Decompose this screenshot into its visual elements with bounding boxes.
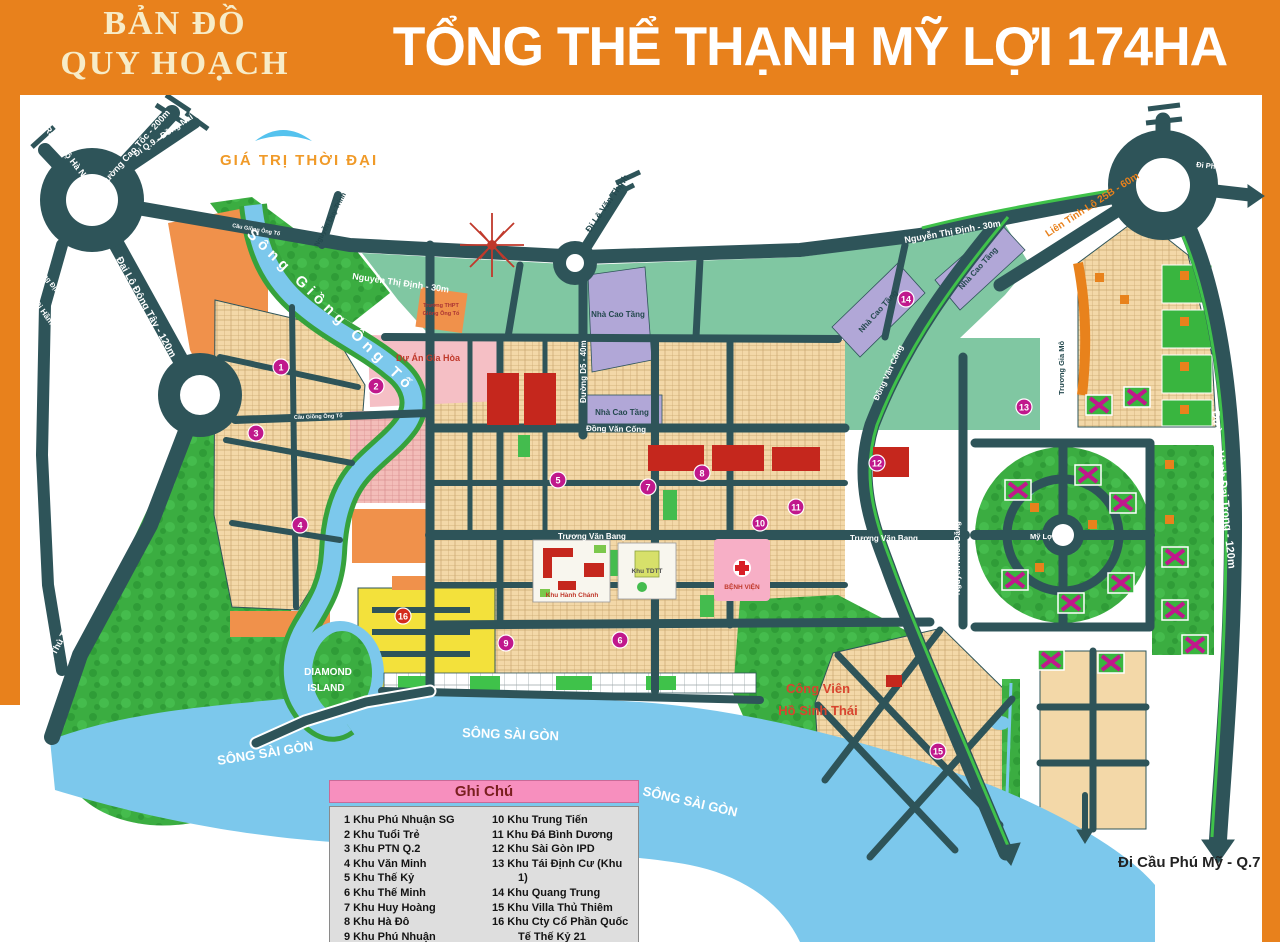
road-label-dong-van-cong-1: Đồng Văn Cống xyxy=(586,424,646,434)
road-label-dai-lo-dong-tay-1: Đại Lộ Đông Tây - 120m xyxy=(113,255,178,360)
area-marker-number: 14 xyxy=(901,295,911,305)
area-marker-number: 16 xyxy=(398,612,408,622)
area-marker-number: 2 xyxy=(373,382,378,392)
area-marker-number: 1 xyxy=(278,363,283,373)
area-marker-number: 15 xyxy=(933,747,943,757)
area-label-diamond-2: ISLAND xyxy=(307,683,344,694)
legend-item: 15 Khu Villa Thủ Thiêm xyxy=(492,901,634,916)
road-label-truong-gia-mo: Trương Gia Mô xyxy=(1057,340,1066,395)
legend-item: 3 Khu PTN Q.2 xyxy=(344,842,486,857)
area-label-nct-1: Nhà Cao Tầng xyxy=(591,310,645,319)
legend: Ghi Chú 1 Khu Phú Nhuận SG2 Khu Tuổi Trẻ… xyxy=(329,780,639,942)
area-label-congvien-1: Công Viên xyxy=(786,681,850,696)
area-label-diamond-1: DIAMOND xyxy=(304,667,352,678)
area-label-nct-2: Nhà Cao Tầng xyxy=(595,408,649,417)
legend-box: 1 Khu Phú Nhuận SG2 Khu Tuổi Trẻ3 Khu PT… xyxy=(329,806,639,942)
area-marker-number: 4 xyxy=(297,521,302,531)
program-label: BẢN ĐỒ QUY HOẠCH xyxy=(0,4,350,84)
area-marker-number: 9 xyxy=(503,639,508,649)
area-marker-number: 11 xyxy=(791,503,801,513)
legend-column-left: 1 Khu Phú Nhuận SG2 Khu Tuổi Trẻ3 Khu PT… xyxy=(344,813,486,942)
area-label-thpt-1: Trường THPT xyxy=(423,303,459,309)
area-label-khu-hanh-chanh: Khu Hành Chánh xyxy=(546,592,599,599)
logo-text: GIÁ TRỊ THỜI ĐẠI xyxy=(220,151,378,169)
legend-item: 13 Khu Tái Định Cư (Khu 1) xyxy=(492,857,634,886)
area-marker-number: 12 xyxy=(872,459,882,469)
area-marker-number: 7 xyxy=(645,483,650,493)
program-line1: BẢN ĐỒ xyxy=(0,4,350,44)
header-banner: BẢN ĐỒ QUY HOẠCH TỔNG THỂ THẠNH MỸ LỢI 1… xyxy=(0,0,1280,95)
road-label-le-van-thinh: Đi Lê Văn Thịnh xyxy=(583,173,630,234)
logo-swoosh-icon xyxy=(255,130,312,141)
area-label-benh-vien: BỆNH VIỆN xyxy=(724,582,760,591)
area-marker-number: 10 xyxy=(755,519,765,529)
area-marker-number: 13 xyxy=(1019,403,1029,413)
legend-item: 4 Khu Văn Minh xyxy=(344,857,486,872)
area-marker-number: 6 xyxy=(617,636,622,646)
area-label-khu-tdtt: Khu TDTT xyxy=(631,568,662,575)
area-marker-number: 3 xyxy=(253,429,258,439)
legend-item: 7 Khu Huy Hoàng xyxy=(344,901,486,916)
legend-item: 9 Khu Phú Nhuận xyxy=(344,930,486,942)
road-label-d5: Đường D5 - 40m xyxy=(579,340,588,403)
legend-item: 10 Khu Trung Tiến xyxy=(492,813,634,828)
legend-item: 5 Khu Thế Kỷ xyxy=(344,871,486,886)
planning-map-page: BẢN ĐỒ QUY HOẠCH TỔNG THỂ THẠNH MỸ LỢI 1… xyxy=(0,0,1280,942)
legend-item: 16 Khu Cty Cổ Phần Quốc Tế Thế Kỷ 21 xyxy=(492,915,634,942)
legend-item: 11 Khu Đá Bình Dương xyxy=(492,828,634,843)
legend-title: Ghi Chú xyxy=(329,780,639,803)
area-label-thpt-2: Giồng Ông Tố xyxy=(423,309,460,317)
legend-item: 6 Khu Thế Minh xyxy=(344,886,486,901)
legend-column-right: 10 Khu Trung Tiến11 Khu Đá Bình Dương12 … xyxy=(492,813,634,942)
orange-block-west xyxy=(352,509,428,563)
road-label-truong-van-bang-1: Trương Văn Bang xyxy=(558,532,626,541)
legend-item: 1 Khu Phú Nhuận SG xyxy=(344,813,486,828)
planning-map-canvas: GIÁ TRỊ THỜI ĐẠI Ra Xa Lộ Hà Nội Đường C… xyxy=(0,95,1280,942)
area-marker-number: 5 xyxy=(555,476,560,486)
map-title: TỔNG THỂ THẠNH MỸ LỢI 174HA xyxy=(369,14,1252,78)
legend-item: 8 Khu Hà Đô xyxy=(344,915,486,930)
road-label-cau-phu-my: Đi Cầu Phú Mỹ - Q.7 xyxy=(1118,854,1261,871)
road-label-nguyen-khoa-dang: Nguyễn Khoa Đăng xyxy=(953,521,962,595)
area-label-gia-hoa: Dự Án Gia Hòa xyxy=(396,353,461,363)
program-line2: QUY HOẠCH xyxy=(0,44,350,84)
hospital-block xyxy=(714,539,770,601)
road-label-truong-van-bang-2: Trương Văn Bang xyxy=(850,534,918,543)
legend-item: 12 Khu Sài Gòn IPD xyxy=(492,842,634,857)
road-label-my-loi: Mỹ Lợi xyxy=(1030,532,1055,541)
area-label-congvien-2: Hồ Sinh Thái xyxy=(778,703,857,718)
area-marker-number: 8 xyxy=(699,469,704,479)
legend-item: 2 Khu Tuổi Trẻ xyxy=(344,828,486,843)
legend-item: 14 Khu Quang Trung xyxy=(492,886,634,901)
